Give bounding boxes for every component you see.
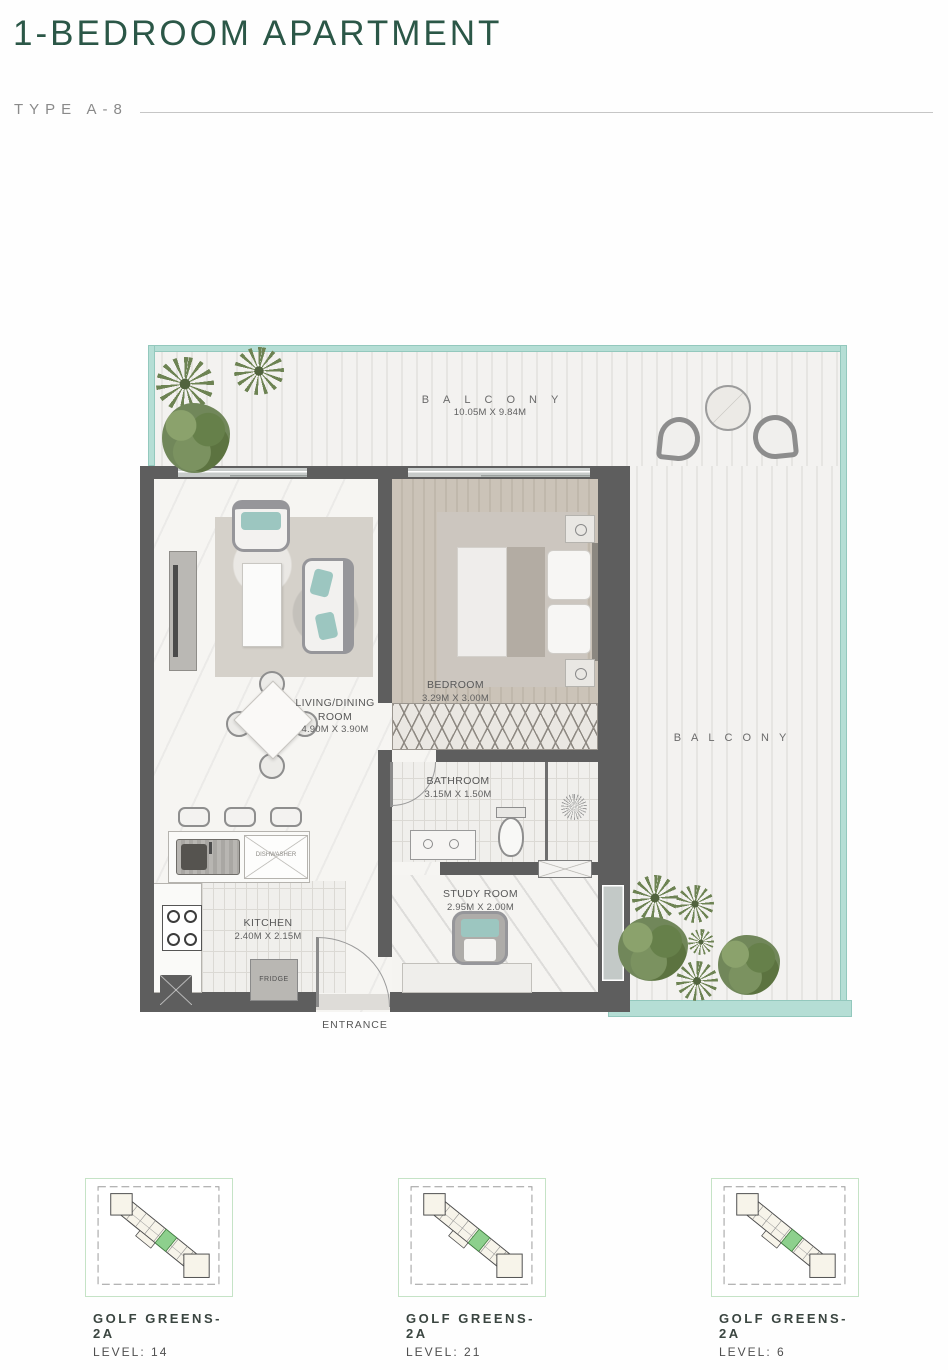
bedroom-sliding-door: [408, 468, 590, 477]
armchair-cushion: [241, 512, 281, 530]
balcony-table: [705, 385, 751, 431]
entrance-label: ENTRANCE: [305, 1019, 405, 1033]
kitchen-label: KITCHEN 2.40M X 2.15M: [208, 917, 328, 943]
wall-living-bedroom: [378, 479, 392, 703]
study-room-dims: 2.95M X 2.00M: [418, 902, 543, 914]
study-chair-cushion: [461, 919, 499, 937]
wardrobe: [392, 703, 598, 750]
building-name: GOLF GREENS-2A: [711, 1311, 859, 1341]
kitchen-sink: [176, 839, 240, 875]
wall-left: [140, 466, 154, 1012]
bedroom-name: BEDROOM: [398, 679, 513, 693]
vanity: [410, 830, 476, 860]
palm-plant: [632, 875, 678, 921]
bedroom-label: BEDROOM 3.29M X 3.00M: [398, 679, 513, 705]
balcony-top-label: BALCONY 10.05M X 9.84M: [340, 393, 640, 420]
building-map-svg: [712, 1179, 857, 1295]
living-room-label: LIVING/DINING ROOM 4.90M X 3.90M: [280, 697, 390, 737]
balcony-top-dims: 10.05M X 9.84M: [340, 407, 640, 419]
railing-right: [840, 345, 847, 1012]
palm-plant: [676, 885, 714, 923]
building-level: LEVEL: 14: [85, 1345, 233, 1359]
building-map-svg: [399, 1179, 544, 1295]
coffee-table: [242, 563, 282, 647]
keyplan-1: GOLF GREENS-2A LEVEL: 14: [85, 1178, 233, 1359]
divider-line: [140, 112, 933, 113]
study-chair: [452, 911, 508, 965]
nightstand-bottom: [565, 659, 595, 687]
wall-study-left: [378, 875, 392, 957]
bed-duvet-right: [507, 547, 545, 657]
palm-plant: [676, 961, 718, 1001]
tv-screen: [173, 565, 178, 657]
type-label: TYPE A-8: [14, 101, 128, 118]
living-room-dims: 4.90M X 3.90M: [280, 724, 390, 736]
sofa-pillow: [315, 611, 339, 640]
wall-bathroom-top: [436, 750, 630, 762]
floor-plan: DISHWASHER FRIDGE: [140, 345, 852, 1045]
dishwasher: DISHWASHER: [244, 835, 308, 879]
study-room-name: STUDY ROOM: [418, 888, 543, 902]
balcony-right-name: BALCONY: [630, 731, 830, 745]
living-room-name: LIVING/DINING ROOM: [280, 697, 390, 724]
dishwasher-label: DISHWASHER: [245, 852, 307, 860]
sofa-pillow: [309, 568, 334, 598]
railing-bottom: [608, 1000, 852, 1017]
armchair: [232, 500, 290, 552]
page-title: 1-BEDROOM APARTMENT: [13, 14, 502, 54]
bar-stool: [224, 807, 256, 827]
balcony-right-label: BALCONY: [630, 731, 830, 745]
bathroom-dims: 3.15M X 1.50M: [398, 789, 518, 801]
shower-partition: [545, 762, 548, 862]
study-desk: [402, 963, 532, 993]
study-chair-seat: [464, 939, 496, 961]
bathroom-label: BATHROOM 3.15M X 1.50M: [398, 775, 518, 801]
nightstand-top: [565, 515, 595, 543]
fridge-label: FRIDGE: [251, 975, 297, 984]
wall-bottom-right: [390, 992, 630, 1012]
fridge: FRIDGE: [250, 959, 298, 1001]
service-shaft: [160, 975, 192, 1005]
bar-stool: [270, 807, 302, 827]
palm-plant: [688, 929, 714, 955]
kitchen-name: KITCHEN: [208, 917, 328, 931]
palm-plant: [234, 347, 284, 395]
bed-pillow-top: [547, 550, 591, 600]
bed-duvet-left: [457, 547, 507, 657]
railing-left: [148, 345, 155, 466]
linen-niche: [538, 860, 592, 878]
toilet-bowl: [498, 817, 524, 857]
building-map: [85, 1178, 233, 1297]
study-window: [602, 885, 624, 981]
building-map: [711, 1178, 859, 1297]
keyplan-3: GOLF GREENS-2A LEVEL: 6: [711, 1178, 859, 1359]
kitchen-dims: 2.40M X 2.15M: [208, 931, 328, 943]
palm-plant: [156, 357, 214, 411]
cooktop-hob: [162, 905, 202, 951]
bar-stool: [178, 807, 210, 827]
building-name: GOLF GREENS-2A: [398, 1311, 546, 1341]
sofa: [302, 558, 354, 654]
keyplan-2: GOLF GREENS-2A LEVEL: 21: [398, 1178, 546, 1359]
building-map: [398, 1178, 546, 1297]
building-map-svg: [86, 1179, 231, 1295]
bed-pillow-bottom: [547, 604, 591, 654]
bed-headboard: [592, 543, 598, 661]
wall-study-top: [440, 862, 630, 875]
building-level: LEVEL: 21: [398, 1345, 546, 1359]
bedroom-dims: 3.29M X 3.00M: [398, 693, 513, 705]
brochure-page: 1-BEDROOM APARTMENT TYPE A-8: [0, 0, 948, 1370]
building-name: GOLF GREENS-2A: [85, 1311, 233, 1341]
bathroom-name: BATHROOM: [398, 775, 518, 789]
building-level: LEVEL: 6: [711, 1345, 859, 1359]
balcony-top-name: BALCONY: [340, 393, 640, 407]
shower-drain: [561, 794, 587, 820]
study-room-label: STUDY ROOM 2.95M X 2.00M: [418, 888, 543, 914]
